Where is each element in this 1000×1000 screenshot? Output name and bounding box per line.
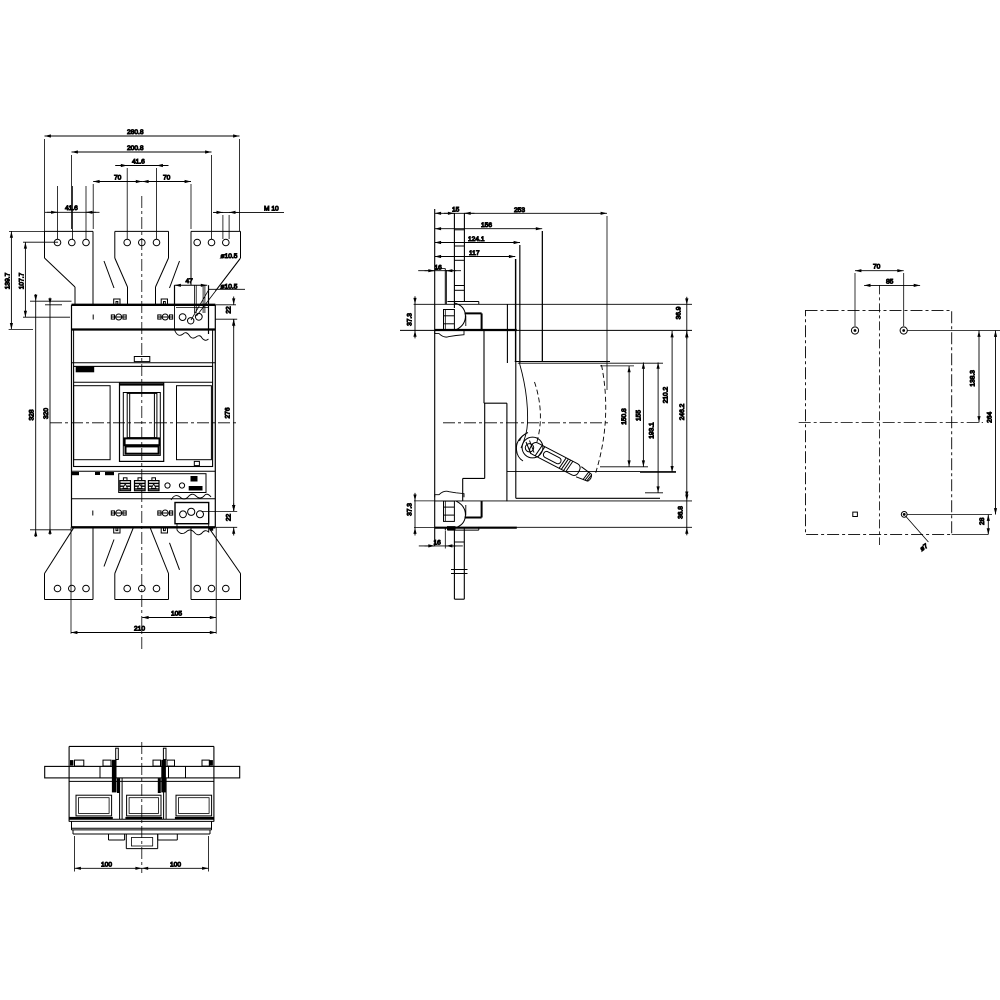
svg-text:156: 156: [481, 222, 492, 229]
svg-text:85: 85: [886, 278, 894, 285]
svg-text:320: 320: [43, 408, 50, 419]
svg-text:100: 100: [101, 861, 112, 868]
svg-text:ø7: ø7: [919, 543, 930, 553]
svg-text:155: 155: [635, 410, 642, 421]
svg-text:ø10.5: ø10.5: [221, 253, 238, 260]
svg-text:117: 117: [469, 250, 480, 257]
svg-text:70: 70: [873, 264, 881, 271]
svg-text:210.2: 210.2: [663, 386, 670, 403]
svg-text:124.1: 124.1: [468, 236, 485, 243]
svg-text:28: 28: [979, 517, 986, 525]
svg-text:280.8: 280.8: [127, 129, 144, 136]
svg-text:253: 253: [514, 207, 525, 214]
svg-text:107.7: 107.7: [19, 272, 26, 289]
svg-text:328: 328: [29, 409, 36, 420]
svg-text:M 10: M 10: [264, 206, 279, 213]
svg-text:47: 47: [186, 278, 194, 285]
svg-text:139.7: 139.7: [5, 272, 12, 289]
svg-text:150.8: 150.8: [621, 408, 628, 425]
svg-text:105: 105: [171, 611, 182, 618]
svg-text:246.2: 246.2: [679, 403, 686, 420]
svg-text:22: 22: [226, 306, 233, 314]
svg-text:16: 16: [434, 540, 442, 547]
svg-text:138.3: 138.3: [970, 370, 977, 387]
svg-text:210: 210: [134, 626, 145, 633]
svg-text:15: 15: [452, 207, 460, 214]
svg-text:36.9: 36.9: [675, 306, 682, 319]
svg-text:37.3: 37.3: [407, 313, 414, 326]
svg-text:37.3: 37.3: [407, 503, 414, 516]
svg-text:41.6: 41.6: [65, 205, 78, 212]
svg-text:22: 22: [226, 514, 233, 522]
svg-text:16: 16: [435, 264, 443, 271]
svg-text:264: 264: [986, 411, 993, 422]
svg-text:200.8: 200.8: [127, 145, 144, 152]
svg-text:70: 70: [114, 175, 122, 182]
svg-text:193.1: 193.1: [649, 422, 656, 439]
svg-text:70: 70: [163, 175, 171, 182]
svg-text:276: 276: [225, 407, 232, 418]
svg-text:41.6: 41.6: [132, 159, 145, 166]
svg-text:100: 100: [170, 861, 181, 868]
svg-text:36.8: 36.8: [677, 506, 684, 519]
